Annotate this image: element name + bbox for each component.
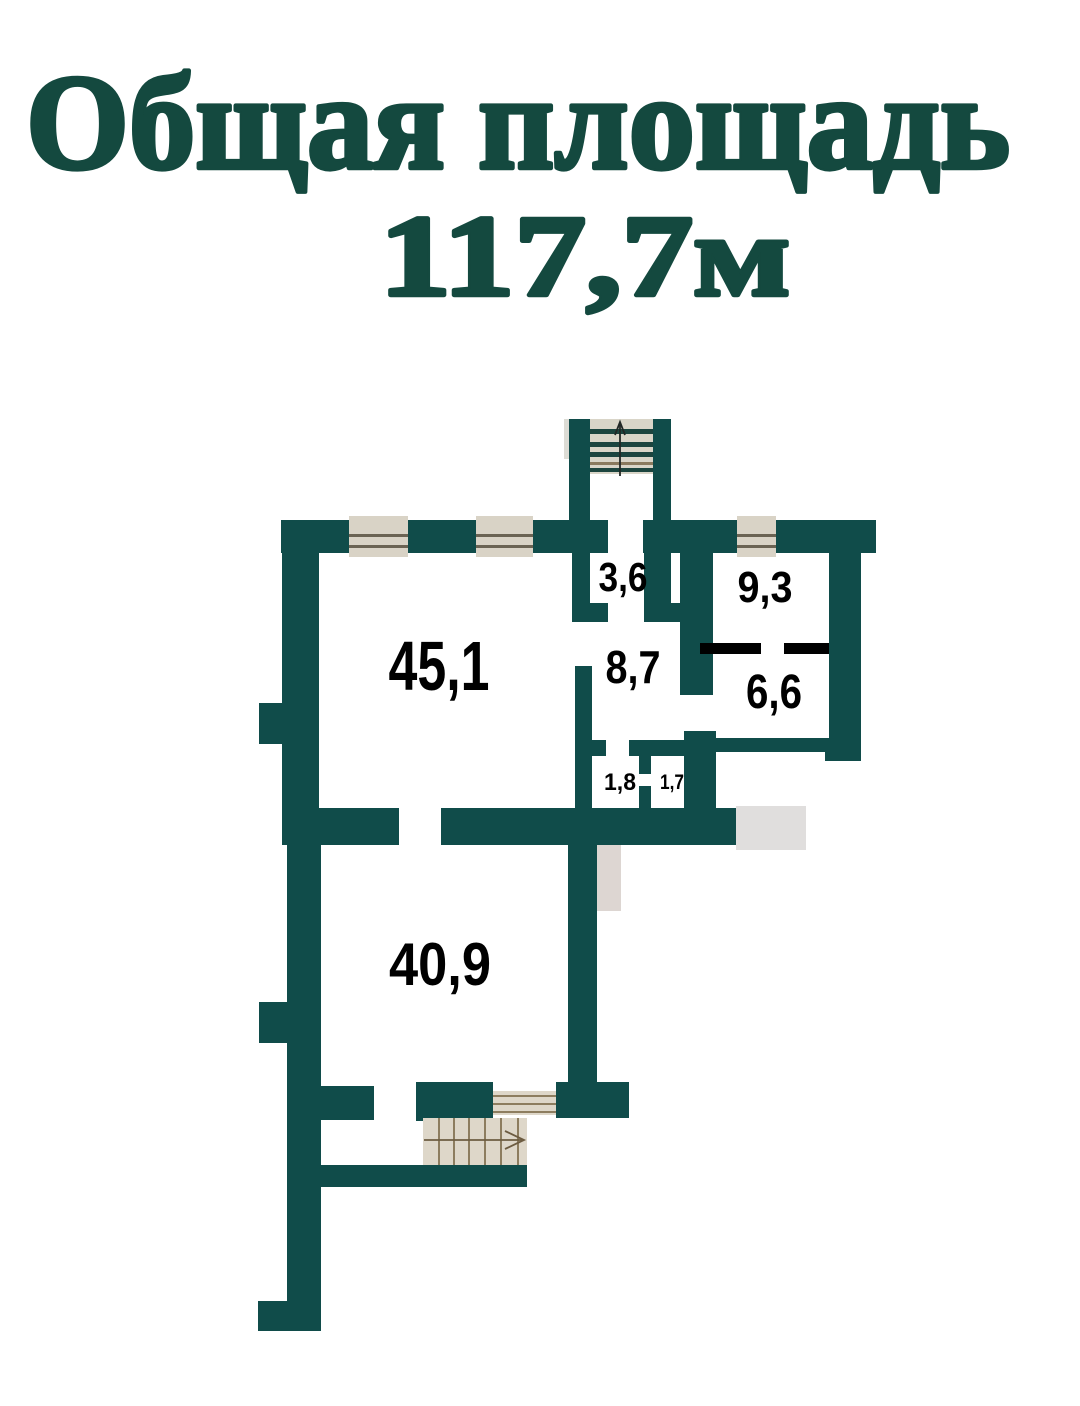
svg-text:6,6: 6,6	[746, 666, 802, 719]
svg-text:3,6: 3,6	[599, 554, 648, 600]
svg-text:1,8: 1,8	[604, 769, 636, 796]
svg-text:45,1: 45,1	[389, 627, 490, 705]
svg-text:117,7м: 117,7м	[380, 193, 791, 321]
svg-text:40,9: 40,9	[389, 931, 491, 998]
svg-text:1,7: 1,7	[660, 771, 684, 794]
svg-text:9,3: 9,3	[738, 563, 793, 612]
svg-text:8,7: 8,7	[606, 641, 661, 693]
svg-text:Общая площадь: Общая площадь	[26, 48, 1010, 198]
